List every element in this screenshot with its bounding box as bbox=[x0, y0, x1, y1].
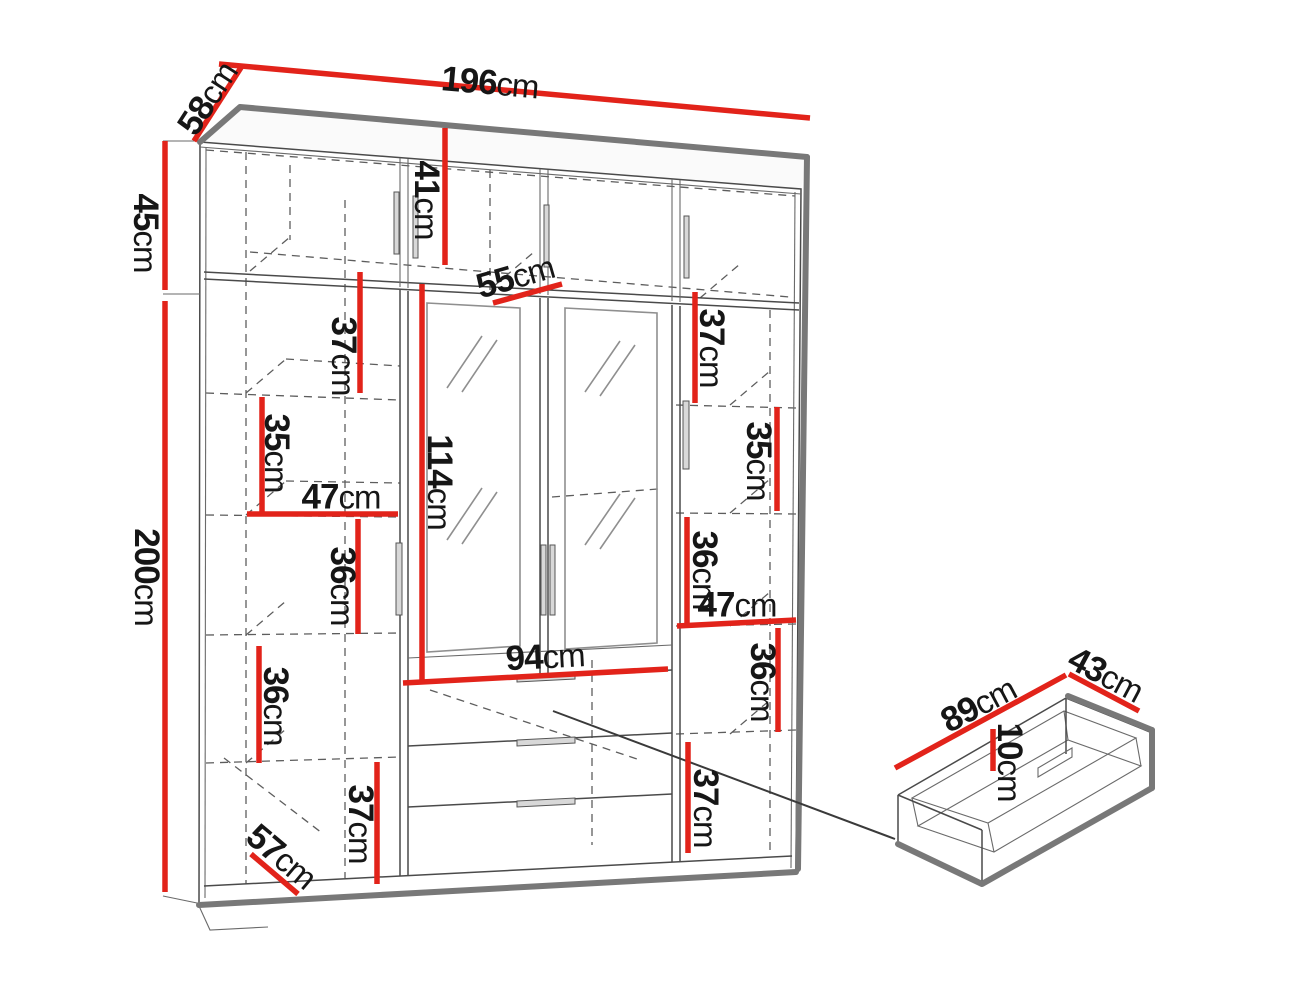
label-36-left-low: 36cm bbox=[256, 667, 295, 746]
label-47-right: 47cm bbox=[698, 585, 777, 624]
label-36-right-low: 36cm bbox=[743, 643, 782, 722]
label-35-left: 35cm bbox=[257, 414, 296, 493]
label-36-left-mid: 36cm bbox=[323, 547, 362, 626]
label-35-right: 35cm bbox=[739, 422, 778, 501]
top-door-handle-4 bbox=[684, 216, 689, 278]
mirror-door-handle-right bbox=[550, 545, 555, 615]
label-top-height-45: 45cm bbox=[126, 194, 165, 273]
right-door-handle bbox=[683, 401, 689, 469]
top-door-handle-1 bbox=[394, 192, 399, 254]
label-37-bottom: 37cm bbox=[341, 785, 380, 864]
label-height-200: 200cm bbox=[127, 528, 166, 625]
label-37-right-bottom: 37cm bbox=[686, 769, 725, 848]
mirror-door-handle-left bbox=[541, 545, 546, 615]
label-mirror-114: 114cm bbox=[420, 434, 459, 529]
diagram-canvas: 58cm 196cm 45cm 200cm 41cm 55cm 37cm 35c… bbox=[0, 0, 1312, 984]
wardrobe-dimension-diagram: 58cm 196cm 45cm 200cm 41cm 55cm 37cm 35c… bbox=[0, 0, 1312, 984]
label-37-left-top: 37cm bbox=[324, 317, 363, 396]
label-top-interior-41: 41cm bbox=[407, 161, 446, 240]
label-47-left: 47cm bbox=[302, 477, 381, 516]
label-drawer-width-94: 94cm bbox=[505, 635, 586, 678]
left-door-handle bbox=[396, 543, 402, 615]
label-width-196: 196cm bbox=[440, 59, 540, 106]
label-drawer-10: 10cm bbox=[990, 723, 1029, 802]
label-37-right-top: 37cm bbox=[692, 309, 731, 388]
